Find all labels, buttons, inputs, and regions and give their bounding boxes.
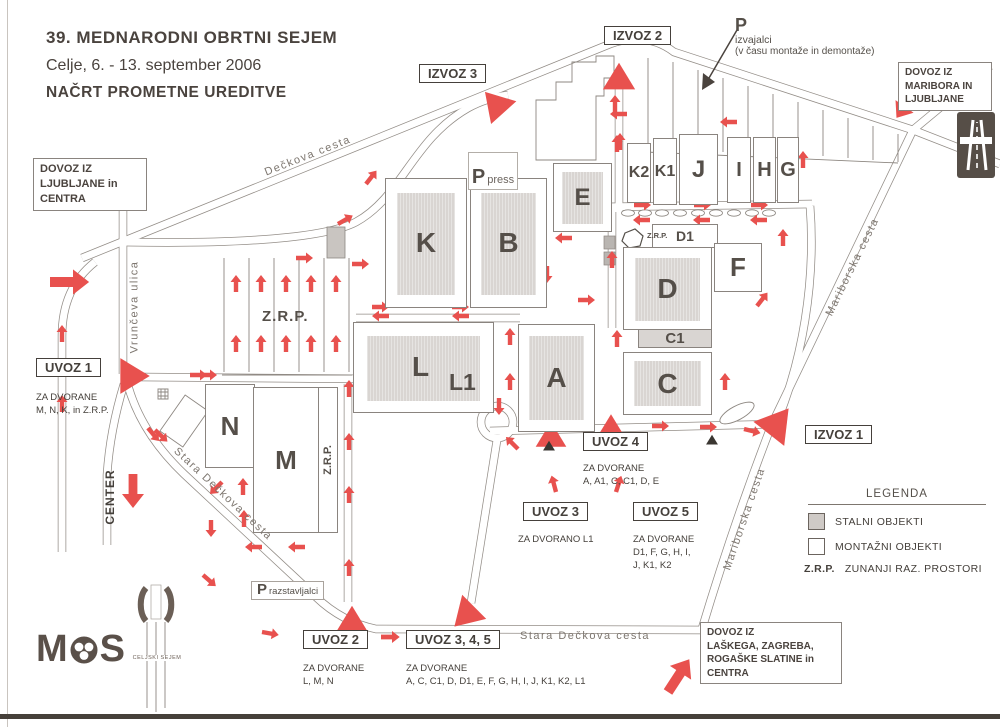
hall-H: H: [753, 137, 776, 203]
legend-item-stalni: STALNI OBJEKTI: [808, 513, 986, 530]
hall-F-label: F: [715, 244, 761, 291]
access-box-lasko: DOVOZ IZ LAŠKEGA, ZAGREBA, ROGAŠKE SLATI…: [700, 622, 842, 684]
uvoz1-triangle: [120, 358, 149, 394]
hall-C-label: C: [624, 353, 711, 414]
center-label: CENTER: [103, 462, 117, 532]
press-label: press: [487, 174, 514, 186]
legend-item-zrp: Z.R.P. ZUNANJI RAZ. PROSTORI: [804, 563, 986, 575]
legend-item-montazni: MONTAŽNI OBJEKTI: [808, 538, 986, 555]
uvoz4-box: UVOZ 4: [583, 432, 648, 451]
izvoz3-box: IZVOZ 3: [419, 64, 486, 83]
razstavljalci-label: razstavljalci: [269, 586, 318, 597]
hall-B-label: B: [471, 179, 546, 307]
uvoz345-note: ZA DVORANE A, C, C1, D, D1, E, F, G, H, …: [406, 663, 586, 689]
motorway-icon: [957, 112, 995, 178]
note-line: ZA DVORANO L1: [518, 534, 594, 547]
uvoz4-note: ZA DVORANE A, A1, C, C1, D, E: [583, 463, 659, 489]
legend-title: LEGENDA: [808, 488, 986, 505]
hall-N: N: [205, 384, 255, 468]
hall-L-label: L: [412, 351, 429, 383]
note-line: ZA DVORANE: [303, 663, 364, 676]
hall-K1: K1: [653, 138, 677, 205]
small-gray-building: [327, 227, 345, 258]
access-line: CENTRA: [707, 667, 835, 681]
montazni-swatch-icon: [808, 538, 825, 555]
access-line: ROGAŠKE SLATINE in: [707, 653, 835, 667]
traffic-plan-map: K B E K2 K1 J I H G D1 F D C1 A C: [0, 0, 1000, 727]
izvoz1-box: IZVOZ 1: [805, 425, 872, 444]
access-line: LJUBLJANE in: [40, 177, 140, 192]
note-line: J, K1, K2: [633, 560, 694, 573]
hall-J-label: J: [680, 135, 717, 204]
hall-D-label: D: [624, 248, 711, 329]
uvoz2-box: UVOZ 2: [303, 630, 368, 649]
note-line: ZA DVORANE: [633, 534, 694, 547]
access-line: DOVOZ IZ: [40, 162, 140, 177]
access-line: MARIBORA IN: [905, 80, 985, 94]
razstavljalci-p-icon: P: [257, 584, 267, 597]
legend-zrp-label: ZUNANJI RAZ. PROSTORI: [845, 563, 982, 575]
legend-stalni-label: STALNI OBJEKTI: [835, 516, 923, 528]
hall-K1-label: K1: [654, 139, 676, 204]
celjski-sejem-label: CELJSKI SEJEM: [128, 655, 186, 661]
zrp-side-strip: Z.R.P.: [318, 387, 338, 533]
hall-K2-label: K2: [628, 144, 650, 202]
izvoz2-box: IZVOZ 2: [604, 26, 671, 45]
hall-N-label: N: [206, 385, 254, 467]
road-label-vrunceva: Vrunčeva ulica: [129, 255, 141, 360]
hall-F: F: [714, 243, 762, 292]
road-label-stara-bottom: Stara Dečkova cesta: [520, 630, 650, 642]
access-line: LAŠKEGA, ZAGREBA,: [707, 640, 835, 654]
mos-letter-s: S: [100, 628, 125, 671]
note-line: ZA DVORANE: [36, 392, 109, 405]
hall-C1-label: C1: [639, 330, 711, 347]
access-line: DOVOZ IZ: [707, 626, 835, 640]
hall-I-label: I: [728, 138, 750, 202]
hall-C1: C1: [638, 329, 712, 348]
hall-K-label: K: [386, 179, 466, 307]
stair-block: [604, 236, 615, 249]
note-line: M, N, K, in Z.R.P.: [36, 405, 109, 418]
zrp-side-label: Z.R.P.: [256, 451, 400, 469]
celjski-sejem-icon: [141, 585, 172, 712]
zrp-hex-label: Z.R.P.: [647, 231, 667, 240]
legend: LEGENDA STALNI OBJEKTI MONTAŽNI OBJEKTI …: [808, 488, 986, 583]
hall-J: J: [679, 134, 718, 205]
uvoz3-note: ZA DVORANO L1: [518, 534, 594, 547]
izvajalci-line1: izvajalci: [735, 34, 875, 46]
access-line: LJUBLJANE: [905, 93, 985, 107]
hall-E: E: [553, 163, 612, 232]
hall-D: D: [623, 247, 712, 330]
note-line: A, A1, C, C1, D, E: [583, 476, 659, 489]
uvoz345-box: UVOZ 3, 4, 5: [406, 630, 500, 649]
zrp-area-label: Z.R.P.: [262, 308, 309, 325]
press-p-icon: P: [472, 169, 485, 186]
note-line: A, C, C1, D, D1, E, F, G, H, I, J, K1, K…: [406, 676, 586, 689]
izvajalci-parking-label: P izvajalci (v času montaže in demontaže…: [735, 16, 875, 57]
uvoz1-note: ZA DVORANE M, N, K, in Z.R.P.: [36, 392, 109, 418]
hall-I: I: [727, 137, 751, 203]
legend-montazni-label: MONTAŽNI OBJEKTI: [835, 541, 942, 553]
zrp-hexagon: [622, 229, 643, 248]
hall-G-label: G: [778, 138, 798, 202]
hall-K: K: [385, 178, 467, 308]
mos-letter-m: M: [36, 628, 68, 671]
hall-L1-label: L1: [449, 369, 476, 396]
mos-logo: M S: [36, 628, 125, 671]
mos-o-icon: [69, 635, 99, 665]
hall-A: A: [518, 324, 595, 432]
stalni-swatch-icon: [808, 513, 825, 530]
hall-E-label: E: [554, 164, 611, 231]
press-parking-box: P press: [468, 152, 518, 190]
access-line: CENTRA: [40, 192, 140, 207]
note-line: ZA DVORANE: [583, 463, 659, 476]
gate-icon: [158, 389, 168, 399]
page-title: 39. MEDNARODNI OBRTNI SEJEM: [46, 28, 426, 48]
hall-B: B: [470, 178, 547, 308]
map-graphics: [0, 0, 1000, 727]
note-line: D1, F, G, H, I,: [633, 547, 694, 560]
header: 39. MEDNARODNI OBRTNI SEJEM Celje, 6. - …: [46, 28, 426, 102]
hall-C: C: [623, 352, 712, 415]
hall-K2: K2: [627, 143, 651, 203]
note-line: L, M, N: [303, 676, 364, 689]
hall-H-label: H: [754, 138, 775, 202]
uvoz5-note: ZA DVORANE D1, F, G, H, I, J, K1, K2: [633, 534, 694, 572]
note-line: ZA DVORANE: [406, 663, 586, 676]
legend-zrp-abbr: Z.R.P.: [804, 563, 835, 575]
page-edge-line: [7, 0, 8, 727]
kiosk-ovals: [622, 210, 776, 216]
tilted-building: [160, 395, 208, 447]
uvoz3-box: UVOZ 3: [523, 502, 588, 521]
access-box-ljubljana: DOVOZ IZ LJUBLJANE in CENTRA: [33, 158, 147, 211]
hall-L: L L1: [353, 322, 494, 413]
hall-G: G: [777, 137, 799, 203]
izvoz2-triangle: [603, 63, 635, 90]
access-line: DOVOZ IZ: [905, 66, 985, 80]
uvoz1-box: UVOZ 1: [36, 358, 101, 377]
uvoz2-note: ZA DVORANE L, M, N: [303, 663, 364, 689]
izvajalci-p-icon: P: [735, 16, 875, 34]
access-box-maribor: DOVOZ IZ MARIBORA IN LJUBLJANE: [898, 62, 992, 111]
bottom-scan-bar: [0, 714, 1000, 719]
hall-A-label: A: [519, 325, 594, 431]
razstavljalci-parking-box: P razstavljalci: [251, 581, 324, 600]
izvajalci-line2: (v času montaže in demontaže): [735, 46, 875, 57]
plan-title: NAČRT PROMETNE UREDITVE: [46, 84, 426, 102]
uvoz5-box: UVOZ 5: [633, 502, 698, 521]
page-subtitle: Celje, 6. - 13. september 2006: [46, 57, 426, 75]
